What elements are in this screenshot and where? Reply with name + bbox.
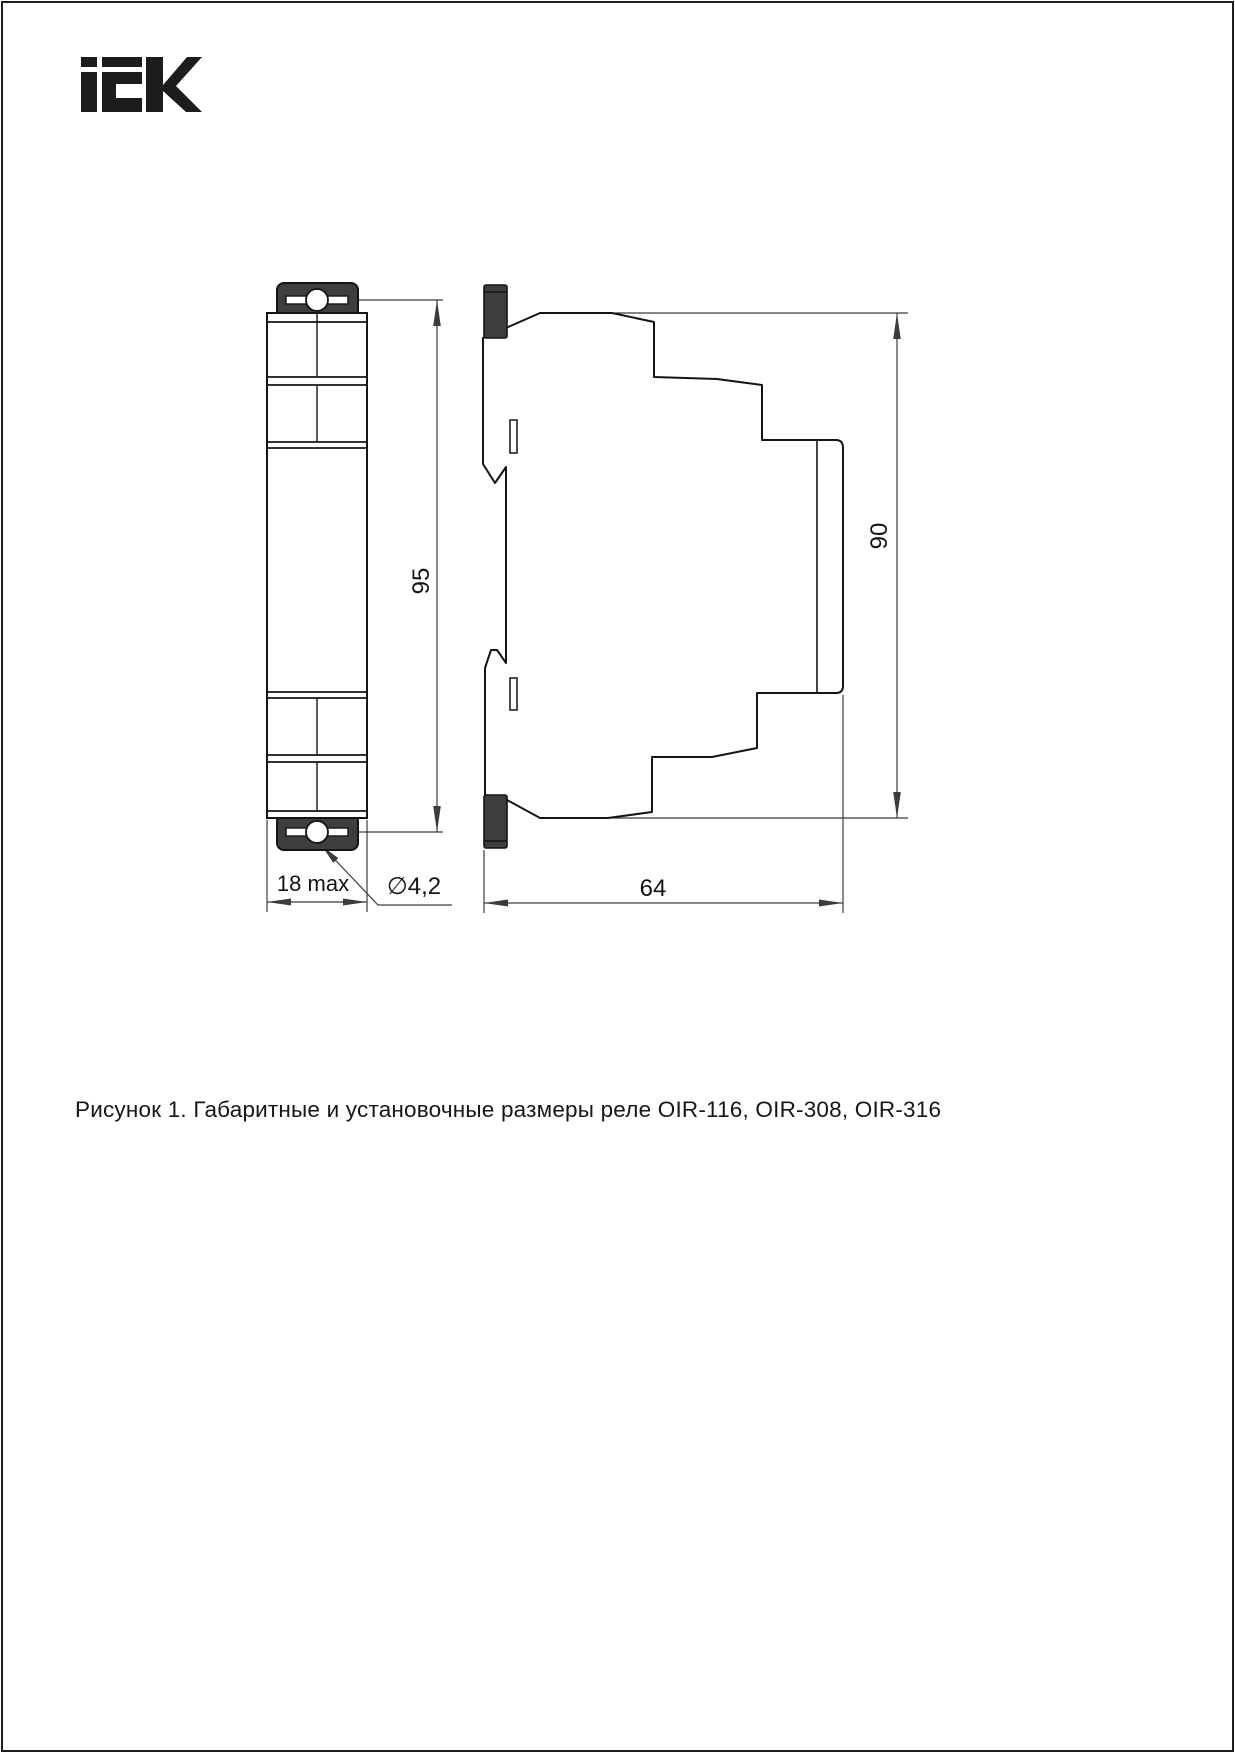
figure-caption: Рисунок 1. Габаритные и установочные раз… xyxy=(75,1097,1115,1123)
arrow-down-icon xyxy=(893,792,901,818)
arrow-left-icon xyxy=(484,900,508,907)
dim-18max-label: 18 max xyxy=(277,871,349,896)
arrow-up-icon xyxy=(433,300,441,326)
dim-64-label: 64 xyxy=(640,875,667,902)
arrow-right-icon xyxy=(819,900,843,907)
arrow-left-icon xyxy=(267,899,291,906)
arrow-down-icon xyxy=(433,806,441,832)
side-slot-top xyxy=(510,420,517,453)
datasheet-page: 95 18 max ∅4,2 xyxy=(0,0,1235,1753)
dimension-drawing: 95 18 max ∅4,2 xyxy=(0,0,1235,960)
dim-95-label: 95 xyxy=(408,568,435,595)
side-slot-bottom xyxy=(510,678,517,710)
front-view: 95 18 max ∅4,2 xyxy=(267,283,452,912)
side-body-outline xyxy=(483,313,843,818)
mount-hole-icon xyxy=(306,289,328,311)
dim-hole-label: ∅4,2 xyxy=(387,873,441,900)
din-clip-bottom xyxy=(484,795,507,848)
arrow-up-icon xyxy=(893,313,901,339)
din-clip-top xyxy=(484,285,507,338)
dim-90-label: 90 xyxy=(866,523,893,550)
side-view: 90 64 xyxy=(483,285,908,913)
arrow-right-icon xyxy=(343,899,367,906)
mount-hole-icon xyxy=(306,821,328,843)
